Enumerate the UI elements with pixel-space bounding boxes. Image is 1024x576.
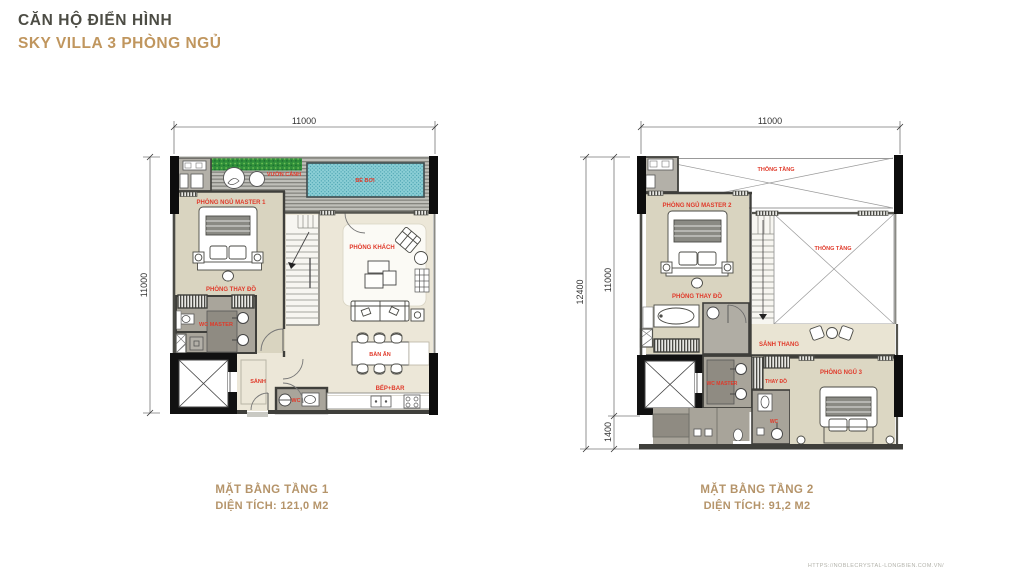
svg-text:SẢNH THANG: SẢNH THANG	[759, 341, 799, 348]
svg-text:CĂN HỘ ĐIỂN HÌNH: CĂN HỘ ĐIỂN HÌNH	[18, 11, 172, 29]
svg-text:DIỆN TÍCH: 121,0 M2: DIỆN TÍCH: 121,0 M2	[215, 499, 328, 512]
svg-text:SKY VILLA 3 PHÒNG NGỦ: SKY VILLA 3 PHÒNG NGỦ	[18, 34, 221, 52]
svg-text:PHÒNG NGỦ MASTER 2: PHÒNG NGỦ MASTER 2	[662, 201, 732, 209]
svg-text:MẶT BẰNG TẦNG 2: MẶT BẰNG TẦNG 2	[700, 483, 813, 496]
svg-text:11000: 11000	[603, 268, 613, 292]
svg-text:PHÒNG THAY ĐỒ: PHÒNG THAY ĐỒ	[206, 285, 256, 293]
svg-text:WC MASTER: WC MASTER	[707, 381, 738, 387]
svg-text:THÔNG TẦNG: THÔNG TẦNG	[815, 244, 852, 252]
svg-text:HTTPS://NOBLECRYSTAL-LONGBIEN.: HTTPS://NOBLECRYSTAL-LONGBIEN.COM.VN/	[808, 563, 944, 569]
svg-text:VƯỜN CẢNH: VƯỜN CẢNH	[267, 170, 301, 178]
svg-text:PHÒNG THAY ĐỒ: PHÒNG THAY ĐỒ	[672, 292, 722, 300]
svg-text:PHÒNG NGỦ MASTER 1: PHÒNG NGỦ MASTER 1	[196, 198, 266, 206]
svg-text:WC: WC	[291, 398, 300, 404]
svg-text:WC: WC	[770, 419, 779, 425]
svg-text:11000: 11000	[139, 273, 149, 297]
svg-text:PHÒNG NGỦ 3: PHÒNG NGỦ 3	[820, 368, 863, 376]
svg-text:MẶT BẰNG TẦNG 1: MẶT BẰNG TẦNG 1	[215, 483, 329, 496]
svg-text:BÀN ĂN: BÀN ĂN	[369, 351, 390, 358]
svg-text:THÔNG TẦNG: THÔNG TẦNG	[758, 165, 795, 173]
svg-text:11000: 11000	[292, 116, 316, 126]
svg-text:DIỆN TÍCH: 91,2 M2: DIỆN TÍCH: 91,2 M2	[704, 499, 811, 512]
svg-text:SẢNH: SẢNH	[250, 378, 266, 385]
svg-text:11000: 11000	[758, 116, 782, 126]
svg-text:PHÒNG KHÁCH: PHÒNG KHÁCH	[349, 243, 394, 251]
svg-text:BỂ BƠI: BỂ BƠI	[355, 177, 375, 184]
svg-text:WC MASTER: WC MASTER	[199, 322, 233, 328]
svg-text:12400: 12400	[575, 279, 585, 304]
svg-text:THAY ĐỒ: THAY ĐỒ	[765, 378, 787, 385]
svg-text:BẾP+BAR: BẾP+BAR	[376, 385, 406, 392]
svg-text:1400: 1400	[603, 422, 613, 442]
